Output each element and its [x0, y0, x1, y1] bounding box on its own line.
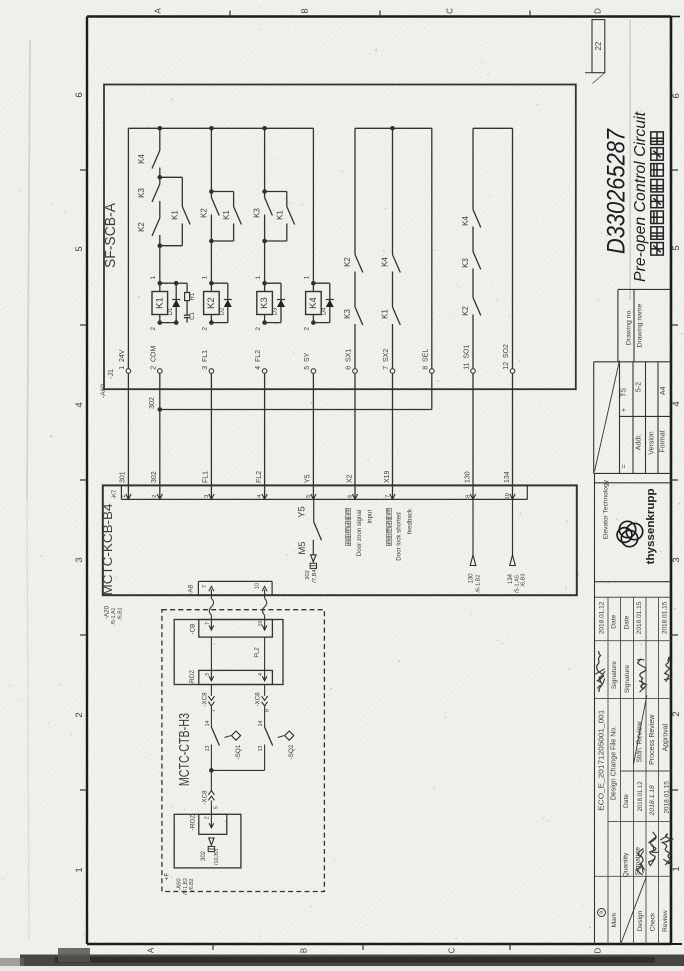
svg-text:Signature: Signature: [624, 665, 631, 694]
svg-text:K3: K3: [343, 309, 352, 319]
svg-text:D: D: [594, 8, 603, 14]
svg-text:MCTC-KCB-B4: MCTC-KCB-B4: [101, 503, 115, 595]
svg-text:3: 3: [204, 495, 210, 498]
svg-text:Drawing name: Drawing name: [636, 303, 643, 347]
svg-text:5 SY: 5 SY: [304, 352, 311, 369]
svg-text:K3: K3: [259, 297, 270, 309]
svg-text:302: 302: [151, 471, 158, 483]
svg-text:-A50: -A50: [177, 878, 183, 890]
svg-text:4: 4: [74, 402, 85, 407]
svg-text:-ROZ: -ROZ: [190, 815, 197, 831]
svg-text:K4: K4: [461, 216, 470, 226]
svg-text:Review: Review: [662, 910, 669, 932]
svg-text:A4: A4: [660, 386, 667, 395]
svg-text:K2: K2: [343, 257, 352, 267]
svg-text:K4: K4: [380, 257, 389, 267]
svg-text:/6-1,B2: /6-1,B2: [475, 574, 481, 592]
svg-text:Date: Date: [611, 615, 618, 629]
svg-text:Format: Format: [659, 430, 666, 452]
svg-text:2: 2: [202, 327, 209, 331]
svg-text:5: 5: [214, 806, 220, 809]
svg-text:Version: Version: [648, 431, 655, 454]
svg-text:-XC8: -XC8: [201, 790, 208, 805]
svg-text:/5-1,B2: /5-1,B2: [183, 878, 189, 895]
svg-text:7 SX2: 7 SX2: [383, 349, 390, 370]
svg-text:302: 302: [201, 850, 207, 861]
svg-text:B: B: [300, 948, 309, 953]
svg-text:Signature: Signature: [611, 661, 618, 690]
svg-text:14: 14: [205, 721, 211, 727]
svg-text:-SQ1: -SQ1: [235, 744, 242, 759]
svg-text:Door zoon signal: Door zoon signal: [356, 510, 363, 556]
svg-text:6: 6: [74, 92, 85, 97]
svg-text:FL2: FL2: [256, 471, 263, 483]
svg-text:2: 2: [205, 816, 211, 819]
svg-text:Pre-open Control Circuit: Pre-open Control Circuit: [632, 111, 649, 282]
svg-text:C: C: [448, 947, 457, 953]
svg-text:M5: M5: [297, 541, 308, 554]
svg-text:C: C: [446, 8, 455, 14]
svg-text:7: 7: [211, 709, 217, 712]
svg-text:-J1: -J1: [108, 369, 115, 379]
svg-text:feedback: feedback: [406, 508, 413, 534]
svg-text:4: 4: [258, 673, 264, 676]
svg-text:Mark: Mark: [611, 912, 618, 927]
svg-text:K1: K1: [380, 309, 389, 319]
svg-text:3: 3: [671, 557, 682, 562]
svg-text:Process Review: Process Review: [649, 714, 656, 765]
svg-text:12 SO2: 12 SO2: [503, 344, 510, 370]
svg-text:-XC8: -XC8: [255, 692, 262, 707]
svg-text:thyssenkrupp: thyssenkrupp: [645, 488, 657, 564]
svg-text:+: +: [621, 408, 628, 412]
svg-text:K1: K1: [222, 210, 231, 220]
svg-text:1: 1: [121, 495, 127, 498]
svg-text:2018.01.15: 2018.01.15: [664, 781, 671, 814]
svg-text:5: 5: [306, 495, 312, 498]
svg-text:2018.1.18: 2018.1.18: [649, 785, 656, 816]
svg-text:Drawing no.: Drawing no.: [626, 309, 633, 345]
svg-text:X2: X2: [346, 474, 353, 483]
svg-text:134: 134: [508, 573, 514, 584]
svg-text:-K7: -K7: [112, 489, 118, 499]
svg-text:B: B: [301, 8, 310, 13]
svg-text:FL1: FL1: [203, 471, 210, 483]
svg-text:D: D: [594, 947, 603, 953]
svg-text:-SQ2: -SQ2: [288, 744, 295, 759]
svg-text:K3: K3: [253, 208, 262, 218]
svg-text:11 SO1: 11 SO1: [464, 345, 471, 370]
svg-text:D1: D1: [168, 307, 174, 315]
svg-text:1: 1: [304, 275, 311, 279]
svg-text:-XC8: -XC8: [202, 692, 209, 707]
svg-text:Y5: Y5: [305, 474, 312, 483]
svg-text:K2: K2: [206, 297, 217, 309]
svg-text:C1: C1: [190, 312, 196, 320]
svg-text:5: 5: [74, 246, 85, 251]
svg-text:FL2: FL2: [255, 647, 261, 658]
svg-text:K1: K1: [154, 297, 165, 309]
svg-text:D2: D2: [219, 307, 225, 315]
svg-text:/10,B3: /10,B3: [214, 849, 220, 865]
svg-text:7: 7: [205, 622, 211, 625]
svg-text:K4: K4: [308, 297, 319, 309]
svg-text:3 FL1: 3 FL1: [202, 350, 209, 370]
svg-text:A: A: [147, 947, 156, 953]
svg-text:8 SEL: 8 SEL: [422, 349, 429, 370]
svg-text:K2: K2: [200, 208, 209, 218]
svg-text:Elevator Technology: Elevator Technology: [602, 479, 609, 539]
svg-text:1: 1: [150, 275, 157, 279]
svg-text:3: 3: [205, 673, 211, 676]
svg-text:1: 1: [74, 867, 85, 872]
svg-text:/6,B2: /6,B2: [189, 878, 195, 890]
svg-text:1: 1: [671, 866, 682, 871]
svg-text:Check: Check: [649, 912, 656, 931]
svg-text:K1: K1: [171, 210, 180, 220]
svg-text:1: 1: [255, 275, 262, 279]
svg-text:7: 7: [385, 495, 391, 498]
svg-text:6 SX1: 6 SX1: [346, 349, 353, 370]
svg-text:MCTC-CTB-H3: MCTC-CTB-H3: [176, 713, 193, 786]
svg-text:D330265287: D330265287: [603, 128, 631, 254]
svg-text:Y5: Y5: [297, 506, 308, 518]
svg-text:130: 130: [464, 471, 471, 483]
svg-text:-CB: -CB: [190, 623, 197, 634]
svg-text:-AB: -AB: [189, 584, 195, 594]
svg-text:2018.01.15: 2018.01.15: [636, 601, 643, 634]
svg-text:5: 5: [671, 245, 682, 250]
svg-text:/5-1,A1: /5-1,A1: [111, 608, 117, 625]
svg-text:Approval: Approval: [662, 723, 669, 751]
svg-text:Date: Date: [624, 615, 631, 629]
svg-text:Stdn. Review: Stdn. Review: [637, 720, 644, 762]
svg-text:2: 2: [152, 495, 158, 498]
svg-text:2: 2: [150, 327, 157, 331]
svg-text:/7,B4: /7,B4: [312, 568, 318, 582]
svg-text:13: 13: [258, 746, 264, 752]
svg-text:Door lock shorted: Door lock shorted: [396, 512, 403, 561]
svg-text:6: 6: [347, 495, 353, 498]
svg-text:A: A: [154, 8, 163, 14]
svg-text:Quantity: Quantity: [623, 852, 630, 877]
svg-text:134: 134: [504, 471, 511, 483]
svg-text:-A60: -A60: [100, 384, 107, 398]
svg-text:input: input: [367, 510, 374, 524]
svg-text:2018.01.12: 2018.01.12: [598, 601, 605, 634]
svg-text:SF-SCB-A: SF-SCB-A: [102, 203, 119, 268]
svg-text:1: 1: [202, 275, 209, 279]
svg-text:-RDZ: -RDZ: [189, 670, 196, 685]
svg-text:13: 13: [205, 746, 211, 752]
svg-text:ECO_E_20171205001_001: ECO_E_20171205001_001: [596, 710, 605, 811]
svg-text:D3: D3: [273, 307, 279, 315]
svg-text:1 24V: 1 24V: [119, 349, 126, 370]
svg-text:/6,B3: /6,B3: [520, 573, 526, 586]
svg-text:6: 6: [671, 93, 682, 98]
svg-text:2: 2: [671, 711, 682, 716]
svg-text:130: 130: [468, 573, 474, 584]
svg-text:2: 2: [304, 327, 311, 331]
svg-text:K1: K1: [275, 210, 284, 220]
svg-text:K3: K3: [137, 188, 146, 198]
svg-text:302: 302: [149, 397, 156, 409]
svg-text:4: 4: [671, 401, 682, 406]
svg-text:10: 10: [505, 493, 511, 499]
svg-text:TS: TS: [621, 388, 628, 397]
svg-text:7: 7: [202, 585, 208, 588]
svg-text:10: 10: [254, 583, 260, 589]
svg-text:+F: +F: [164, 873, 171, 881]
svg-text:3: 3: [74, 557, 85, 562]
svg-text:/6,B1: /6,B1: [117, 607, 123, 619]
svg-text:K3: K3: [461, 258, 470, 268]
svg-text:5-2: 5-2: [636, 382, 643, 392]
svg-text:2 COM: 2 COM: [150, 346, 157, 370]
svg-text:2018.01.15: 2018.01.15: [662, 601, 669, 634]
svg-text:Date: Date: [623, 794, 630, 808]
svg-text:K4: K4: [137, 154, 146, 164]
svg-text:22: 22: [594, 41, 603, 50]
svg-text:10: 10: [258, 621, 264, 627]
svg-text:302: 302: [305, 570, 311, 580]
svg-text:D4: D4: [321, 307, 327, 315]
svg-text:K2: K2: [461, 306, 470, 316]
svg-text:R1: R1: [190, 292, 196, 300]
svg-text:14: 14: [258, 721, 264, 727]
svg-text:=: =: [621, 464, 628, 468]
svg-text:4 FL2: 4 FL2: [255, 350, 262, 370]
svg-text:Design Change File No.: Design Change File No.: [611, 726, 618, 800]
svg-text:Addr.: Addr.: [636, 434, 643, 450]
svg-text:2: 2: [74, 712, 85, 717]
svg-text:X19: X19: [384, 470, 391, 483]
svg-text:301: 301: [120, 471, 127, 483]
svg-text:K2: K2: [137, 222, 146, 232]
svg-text:2018.01.12: 2018.01.12: [638, 781, 644, 812]
svg-text:-A20: -A20: [104, 605, 111, 619]
svg-text:8: 8: [264, 709, 270, 712]
svg-text:2: 2: [255, 327, 262, 331]
svg-text:Design: Design: [637, 910, 644, 931]
svg-text:8: 8: [465, 495, 471, 498]
